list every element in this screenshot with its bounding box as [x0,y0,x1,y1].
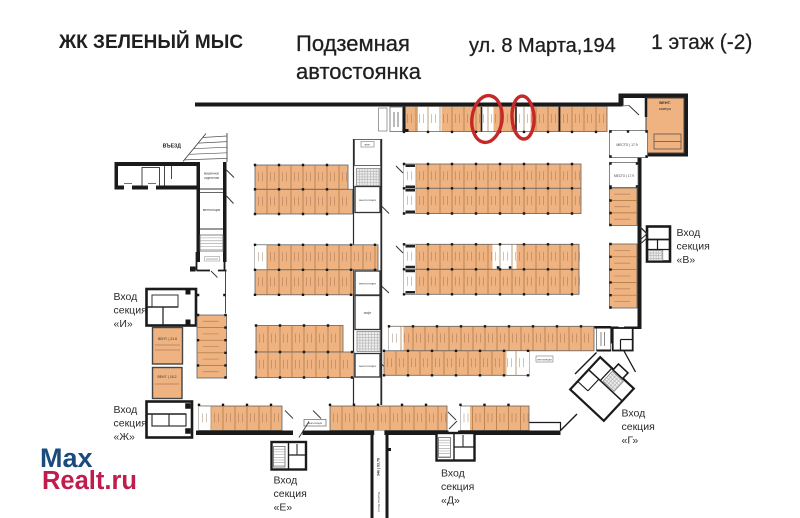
svg-text:«Ж»: «Ж» [114,431,136,443]
svg-text:Вход: Вход [622,408,646,420]
svg-text:вент: вент [365,143,372,147]
svg-text:МЕСТО | 17.9: МЕСТО | 17.9 [614,174,634,178]
svg-text:вентиляция: вентиляция [359,282,376,286]
svg-text:ЖК ЗЕЛЕНЫЙ МЫС: ЖК ЗЕЛЕНЫЙ МЫС [58,31,243,53]
svg-text:Вход: Вход [274,475,298,487]
svg-text:вентиляция: вентиляция [203,208,221,212]
svg-text:«И»: «И» [114,318,133,330]
svg-text:секция: секция [114,305,147,317]
svg-text:Вход: Вход [114,404,138,416]
svg-text:Вход: Вход [677,227,701,239]
svg-text:346 | 93.78: 346 | 93.78 [377,458,381,476]
svg-text:съезд переезд: съезд переезд [377,492,381,512]
svg-text:отделение: отделение [204,176,220,180]
svg-text:«Г»: «Г» [622,435,639,447]
svg-text:Вход: Вход [114,291,138,303]
svg-text:вентиляция: вентиляция [359,364,376,368]
svg-text:«В»: «В» [677,254,696,266]
svg-text:Вход: Вход [441,468,465,480]
svg-text:секция: секция [441,481,474,493]
svg-text:ВЕНТ. | 21.6: ВЕНТ. | 21.6 [158,337,177,341]
svg-text:лифт: лифт [364,311,372,315]
svg-text:«Д»: «Д» [441,495,460,507]
svg-text:вентиляция: вентиляция [537,359,552,362]
svg-text:Подземная: Подземная [296,31,410,56]
svg-text:секция: секция [114,418,147,430]
svg-text:секция: секция [622,421,655,433]
svg-text:ВЪЕЗД: ВЪЕЗД [163,144,182,150]
svg-text:автостоянка: автостоянка [296,59,422,84]
svg-text:машинное: машинное [204,172,220,176]
svg-text:вентиляция: вентиляция [359,198,376,202]
svg-text:1 этаж (-2): 1 этаж (-2) [651,31,752,54]
svg-text:ВЕНТ.: ВЕНТ. [659,100,671,105]
svg-text:секция: секция [677,241,710,253]
svg-text:камера: камера [659,107,671,111]
svg-text:Realt.ru: Realt.ru [42,467,137,495]
svg-text:МЕСТО | 17.9: МЕСТО | 17.9 [616,143,637,147]
svg-text:секция: секция [274,488,307,500]
svg-text:«Е»: «Е» [274,502,293,514]
svg-text:ул. 8 Марта,194: ул. 8 Марта,194 [469,35,616,57]
svg-text:ВЕНТ. | 18.2: ВЕНТ. | 18.2 [158,375,177,379]
svg-text:вентиляция: вентиляция [308,422,323,425]
